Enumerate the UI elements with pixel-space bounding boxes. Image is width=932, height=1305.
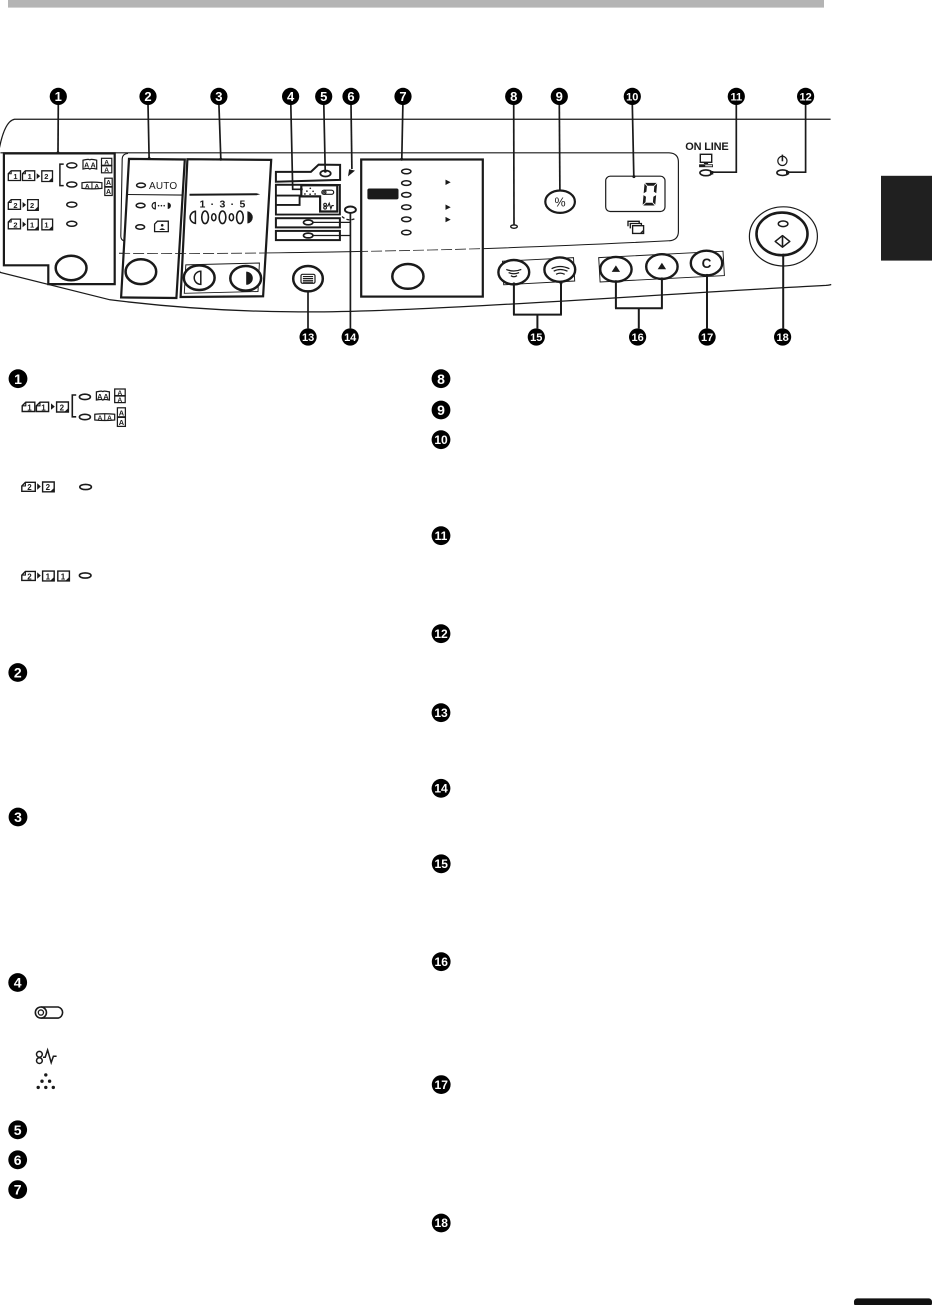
svg-text:14: 14 [434, 782, 448, 796]
svg-text:A: A [107, 415, 112, 422]
svg-text:AUTO: AUTO [149, 181, 177, 192]
svg-text:ON LINE: ON LINE [685, 141, 728, 153]
svg-text:1: 1 [13, 172, 17, 181]
svg-text:17: 17 [435, 1078, 449, 1092]
svg-text:A: A [103, 392, 108, 401]
svg-text:2: 2 [46, 483, 51, 492]
svg-text:3: 3 [14, 809, 22, 825]
svg-text:6: 6 [14, 1152, 22, 1168]
svg-text:9: 9 [556, 89, 563, 104]
svg-text:8: 8 [510, 89, 517, 104]
svg-text:1: 1 [14, 371, 22, 387]
svg-text:7: 7 [14, 1182, 22, 1198]
svg-text:5: 5 [14, 1122, 22, 1138]
svg-text:C: C [702, 256, 712, 271]
svg-text:18: 18 [435, 1216, 449, 1230]
svg-text:1: 1 [30, 221, 34, 230]
svg-text:3: 3 [215, 89, 222, 104]
svg-text:A: A [98, 415, 103, 422]
svg-text:1: 1 [27, 403, 32, 412]
svg-text:10: 10 [626, 91, 638, 103]
svg-text:9: 9 [437, 402, 445, 418]
svg-text:1: 1 [41, 403, 46, 412]
svg-text:A: A [91, 162, 96, 169]
svg-text:1: 1 [46, 572, 51, 581]
svg-text:7: 7 [399, 89, 406, 104]
svg-text:A: A [84, 162, 89, 169]
svg-text:12: 12 [799, 91, 811, 103]
svg-text:2: 2 [30, 201, 34, 210]
svg-text:2: 2 [144, 89, 151, 104]
svg-text:2: 2 [27, 483, 32, 492]
svg-text:11: 11 [435, 529, 448, 543]
svg-text:2: 2 [60, 403, 65, 412]
svg-text:13: 13 [302, 332, 314, 344]
svg-text:2: 2 [13, 201, 17, 210]
svg-text:2: 2 [14, 665, 22, 681]
svg-text:A: A [94, 183, 99, 190]
svg-text:A: A [118, 397, 123, 404]
svg-text:6: 6 [347, 89, 354, 104]
svg-text:1: 1 [28, 172, 32, 181]
svg-text:A: A [106, 180, 111, 187]
svg-text:16: 16 [631, 332, 643, 344]
svg-text:13: 13 [434, 706, 448, 720]
svg-text:2: 2 [27, 572, 32, 581]
svg-text:8: 8 [437, 371, 445, 387]
svg-text:15: 15 [530, 332, 542, 344]
svg-text:2: 2 [13, 221, 17, 230]
svg-text:15: 15 [435, 857, 449, 871]
svg-text:17: 17 [701, 332, 713, 344]
svg-text:A: A [106, 189, 111, 196]
svg-text:12: 12 [434, 627, 448, 641]
svg-text:1: 1 [44, 221, 48, 230]
svg-text:11: 11 [730, 91, 742, 103]
svg-text:18: 18 [776, 332, 788, 344]
svg-text:14: 14 [344, 332, 357, 344]
svg-text:16: 16 [435, 955, 449, 969]
svg-text:1: 1 [61, 572, 66, 581]
svg-text:A: A [97, 392, 102, 401]
svg-text:A: A [119, 408, 125, 417]
svg-text:2: 2 [44, 172, 48, 181]
svg-text:5: 5 [320, 89, 327, 104]
svg-text:A: A [119, 418, 125, 427]
svg-text:A: A [85, 183, 90, 190]
svg-text:4: 4 [287, 89, 295, 104]
svg-text:10: 10 [434, 433, 448, 447]
svg-text:1 · 3 · 5: 1 · 3 · 5 [200, 199, 247, 211]
svg-text:1: 1 [55, 89, 62, 104]
svg-text:%: % [555, 195, 566, 209]
svg-text:A: A [104, 167, 109, 174]
svg-text:4: 4 [14, 975, 22, 991]
